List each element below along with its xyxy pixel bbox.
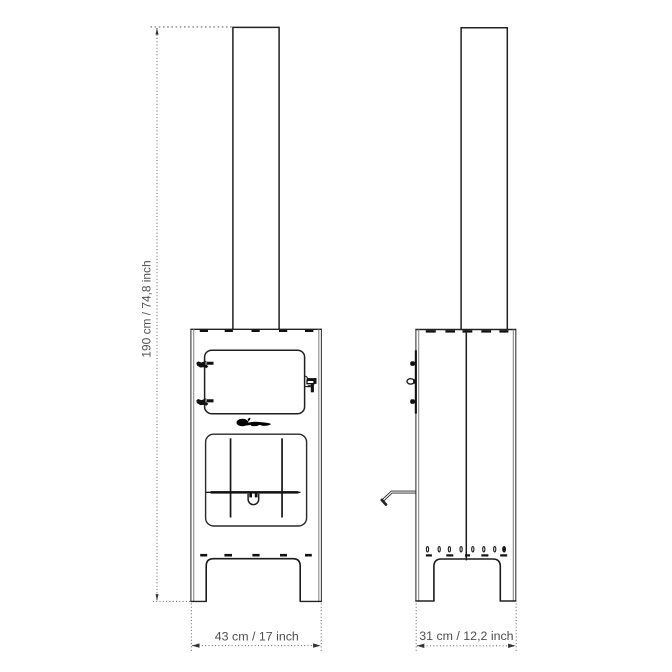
svg-text:190 cm / 74,8 inch: 190 cm / 74,8 inch bbox=[139, 260, 153, 357]
svg-text:31 cm / 12,2 inch: 31 cm / 12,2 inch bbox=[419, 629, 513, 643]
svg-text:43 cm / 17 inch: 43 cm / 17 inch bbox=[215, 629, 299, 643]
